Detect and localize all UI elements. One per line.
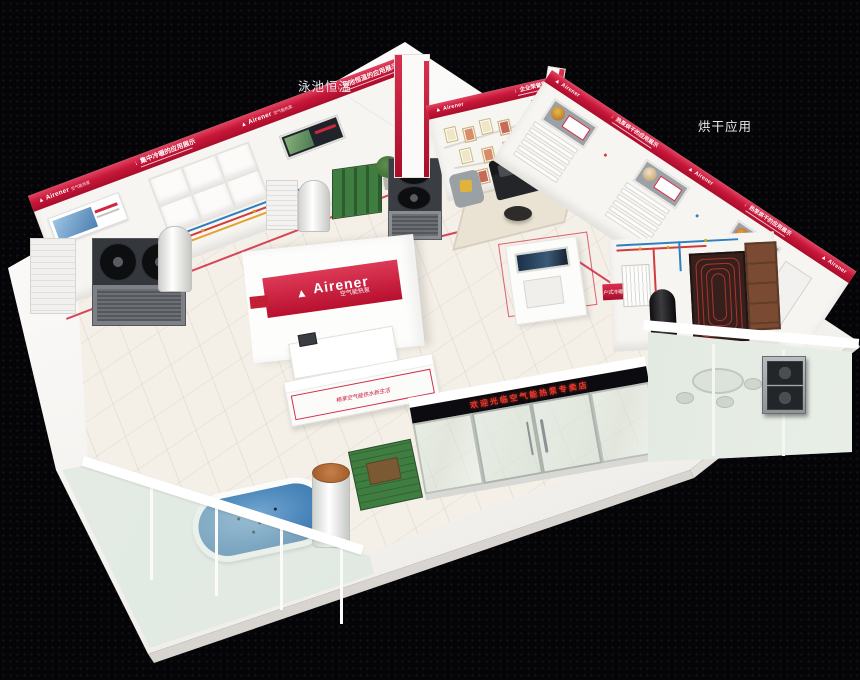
glass-mullion [150,478,153,580]
radiator-panel [621,264,651,307]
logo-red-panel: ▲ Airener 空气能热泵 [262,259,402,318]
fan-icon [99,243,137,281]
door-handle [525,422,533,456]
desk-monitor [298,332,318,347]
board-plate [653,176,682,202]
partition-wall [394,54,430,178]
drying-label: 烘干应用 [698,116,752,135]
brand-mark-icon: ▲ [240,121,248,129]
fan-grille [767,386,803,410]
heating-coil [711,273,727,322]
brand-tagline: 空气能热泵 [272,103,293,116]
tv-partition [505,236,587,325]
throw-pillow [460,180,472,192]
white-unit-cabinet [30,238,76,314]
fan-icon [397,186,431,210]
door-handle [540,419,548,453]
wall-red-box [249,295,268,309]
coffee-table [504,206,532,221]
glass-mullion [215,500,218,596]
unit-grille [392,214,438,236]
down-arrow-icon: ↓ [743,202,749,209]
cylinder-copper-top [312,463,350,483]
brand-tagline: 空气能热泵 [70,179,91,192]
pipe-valve [666,246,669,249]
pool-label: 泳池恒温 [298,76,352,95]
media-cabinet [523,276,565,309]
glass-mullion [340,540,343,624]
glass-mullion [712,344,715,456]
counter-slogan: 畅享空气能热水新生活 [335,385,391,403]
down-arrow-icon: ↓ [133,160,139,168]
outdoor-heat-pump [762,356,806,414]
fan-grille [767,361,803,385]
green-heat-exchanger-panels [332,162,382,219]
brand-mark-icon: ▲ [295,285,309,301]
wood-door [744,241,781,331]
brand-name: Airener [45,186,71,201]
glass-mullion [280,520,283,610]
brand-name: Airener [247,111,273,126]
tv-screen [514,246,570,273]
brand-mark-icon: ▲ [37,196,45,204]
water-tank [158,226,192,292]
brand-name: Airener [442,102,464,113]
water-tank [298,180,330,232]
white-heat-pump [266,180,298,230]
screen-caption [315,124,337,135]
showroom-render: ▲ Airener 空气能热泵 ↓集中冷暖的应用展示 ▲ Airener 空气能… [0,0,860,680]
down-arrow-icon: ↓ [514,88,518,95]
brand-mark-icon: ▲ [435,107,442,114]
brand-lockup: ▲ Airener [435,102,465,114]
unit-grille [97,289,181,321]
entrance-door [531,392,603,473]
down-arrow-icon: ↓ [610,114,616,121]
partition-red-strip [395,55,402,177]
screen-image [284,130,314,155]
board-plate [561,115,590,141]
demo-box [366,457,402,485]
